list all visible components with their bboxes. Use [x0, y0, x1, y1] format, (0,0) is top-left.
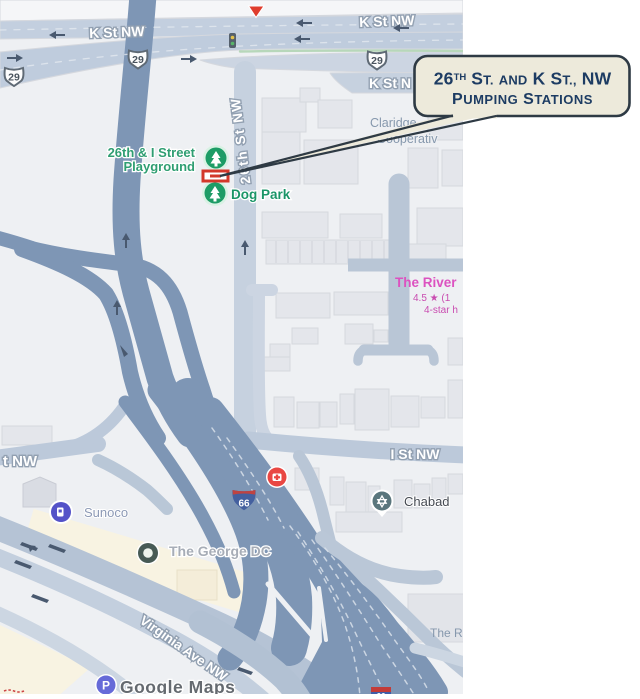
svg-text:29: 29 [8, 72, 20, 84]
svg-text:4.5 ★ (1: 4.5 ★ (1 [413, 293, 451, 304]
svg-text:Playground: Playground [123, 159, 195, 174]
svg-text:Google Maps: Google Maps [120, 677, 235, 697]
svg-text:Sunoco: Sunoco [84, 505, 128, 520]
svg-text:The George DC: The George DC [169, 543, 271, 559]
svg-text:K St NW: K St NW [89, 23, 146, 41]
svg-text:66: 66 [238, 499, 250, 510]
svg-text:K St N: K St N [369, 75, 411, 91]
svg-text:The R: The R [430, 626, 463, 640]
svg-text:The River: The River [395, 275, 457, 290]
svg-text:P: P [102, 679, 110, 693]
svg-text:26th & I Street: 26th & I Street [108, 145, 196, 160]
svg-text:Dog Park: Dog Park [231, 187, 291, 202]
svg-text:I St NW: I St NW [391, 446, 441, 462]
svg-text:Chabad: Chabad [404, 494, 450, 509]
svg-text:29: 29 [371, 55, 383, 67]
svg-text:t NW: t NW [3, 453, 38, 470]
svg-text:29: 29 [132, 54, 144, 66]
svg-text:4-star h: 4-star h [424, 305, 458, 316]
